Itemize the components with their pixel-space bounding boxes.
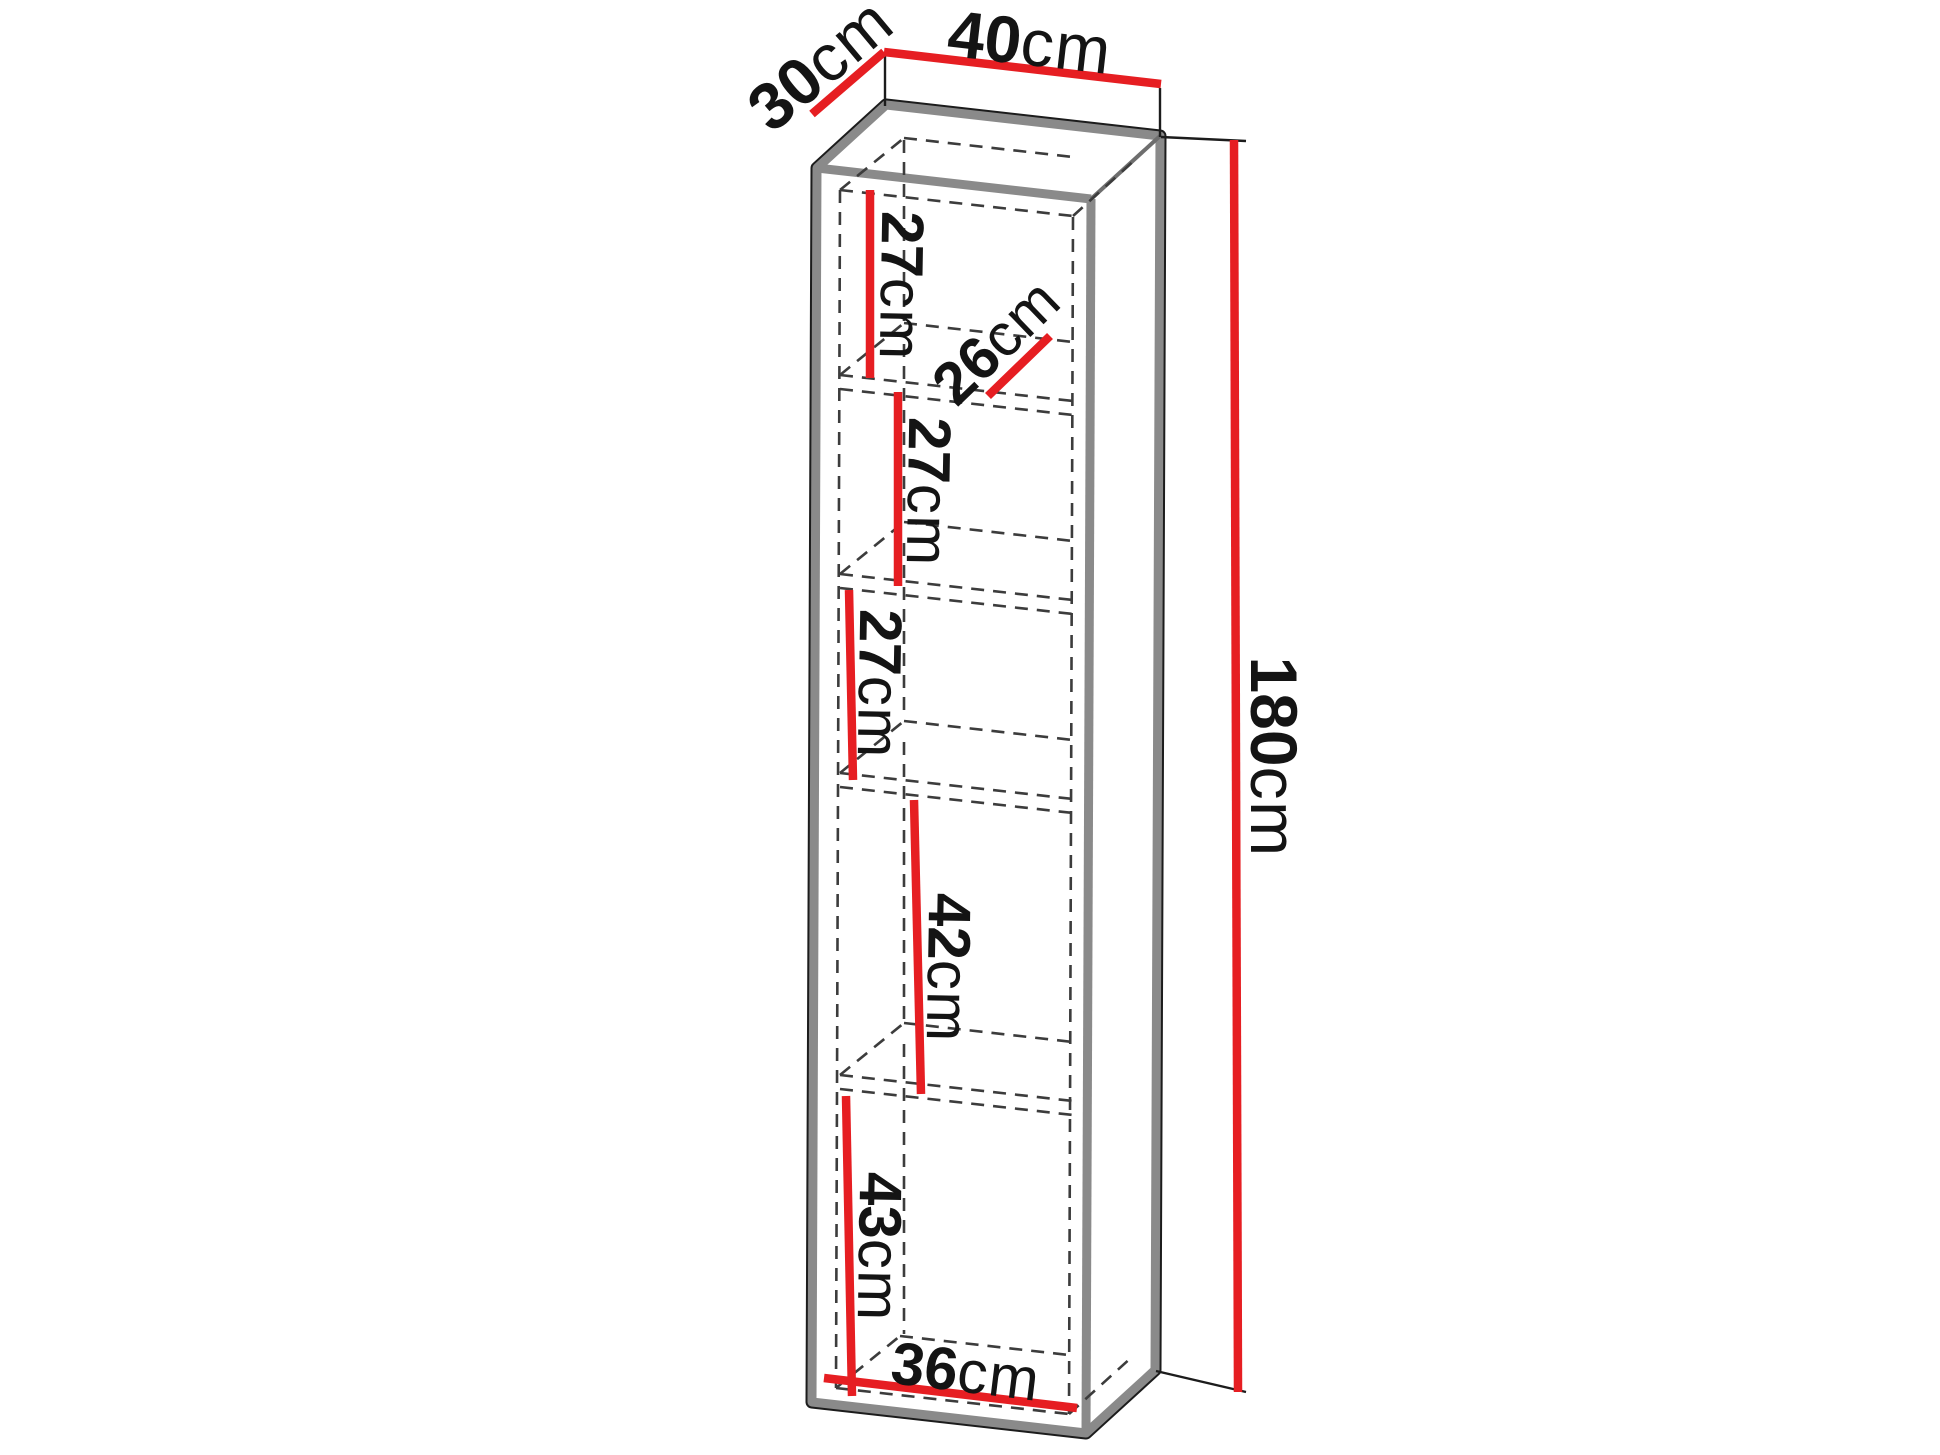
dimension-label-compartment2-27cm: 27cm — [894, 417, 964, 568]
dimension-label-width-40cm: 40cm — [944, 0, 1116, 88]
dimension-label-compartment3-27cm: 27cm — [845, 609, 915, 760]
extension-height-bottom — [1156, 1371, 1246, 1392]
page-background: 30cm 40cm 180cm 27cm 26cm 27cm 27cm 42cm… — [0, 0, 1940, 1455]
dimension-label-compartment5-43cm: 43cm — [845, 1172, 915, 1323]
dimension-label-compartment1-27cm: 27cm — [867, 211, 937, 362]
dimension-label-height-180cm: 180cm — [1237, 656, 1311, 857]
cabinet-dimension-diagram: 30cm 40cm 180cm 27cm 26cm 27cm 27cm 42cm… — [0, 0, 1940, 1455]
dimension-label-compartment4-42cm: 42cm — [914, 893, 984, 1044]
cabinet-front-right-edge — [1086, 199, 1091, 1433]
